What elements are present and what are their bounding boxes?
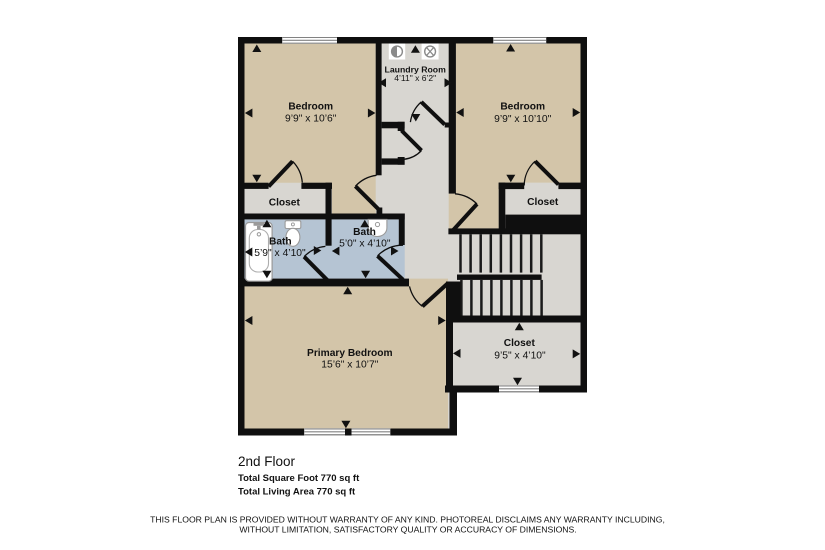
svg-text:Primary Bedroom: Primary Bedroom [307, 348, 393, 359]
svg-text:9’9" x 10’10": 9’9" x 10’10" [494, 114, 551, 125]
svg-text:Bedroom: Bedroom [288, 102, 333, 113]
svg-text:Total Square Foot 770 sq ft: Total Square Foot 770 sq ft [238, 473, 360, 484]
svg-text:2nd Floor: 2nd Floor [238, 454, 296, 469]
svg-text:15’6" x 10’7": 15’6" x 10’7" [321, 359, 378, 370]
svg-text:9’5" x 4’10": 9’5" x 4’10" [494, 351, 546, 362]
svg-text:5’9" x 4’10": 5’9" x 4’10" [254, 248, 306, 259]
svg-text:Closet: Closet [269, 197, 301, 208]
svg-text:4’11" x 6’2": 4’11" x 6’2" [394, 73, 436, 83]
svg-text:5’0" x 4’10": 5’0" x 4’10" [339, 239, 391, 250]
svg-text:Bath: Bath [353, 227, 376, 238]
svg-text:Total Living Area 770 sq ft: Total Living Area 770 sq ft [238, 487, 356, 498]
svg-text:WITHOUT LIMITATION, SATISFACTO: WITHOUT LIMITATION, SATISFACTORY QUALITY… [239, 525, 576, 535]
svg-text:Bedroom: Bedroom [500, 102, 545, 113]
svg-text:Closet: Closet [527, 197, 559, 208]
svg-text:Closet: Closet [504, 338, 536, 349]
svg-text:9’9" x 10’6": 9’9" x 10’6" [285, 114, 337, 125]
svg-text:Bath: Bath [269, 237, 292, 248]
svg-text:THIS FLOOR PLAN IS PROVIDED WI: THIS FLOOR PLAN IS PROVIDED WITHOUT WARR… [150, 514, 665, 524]
